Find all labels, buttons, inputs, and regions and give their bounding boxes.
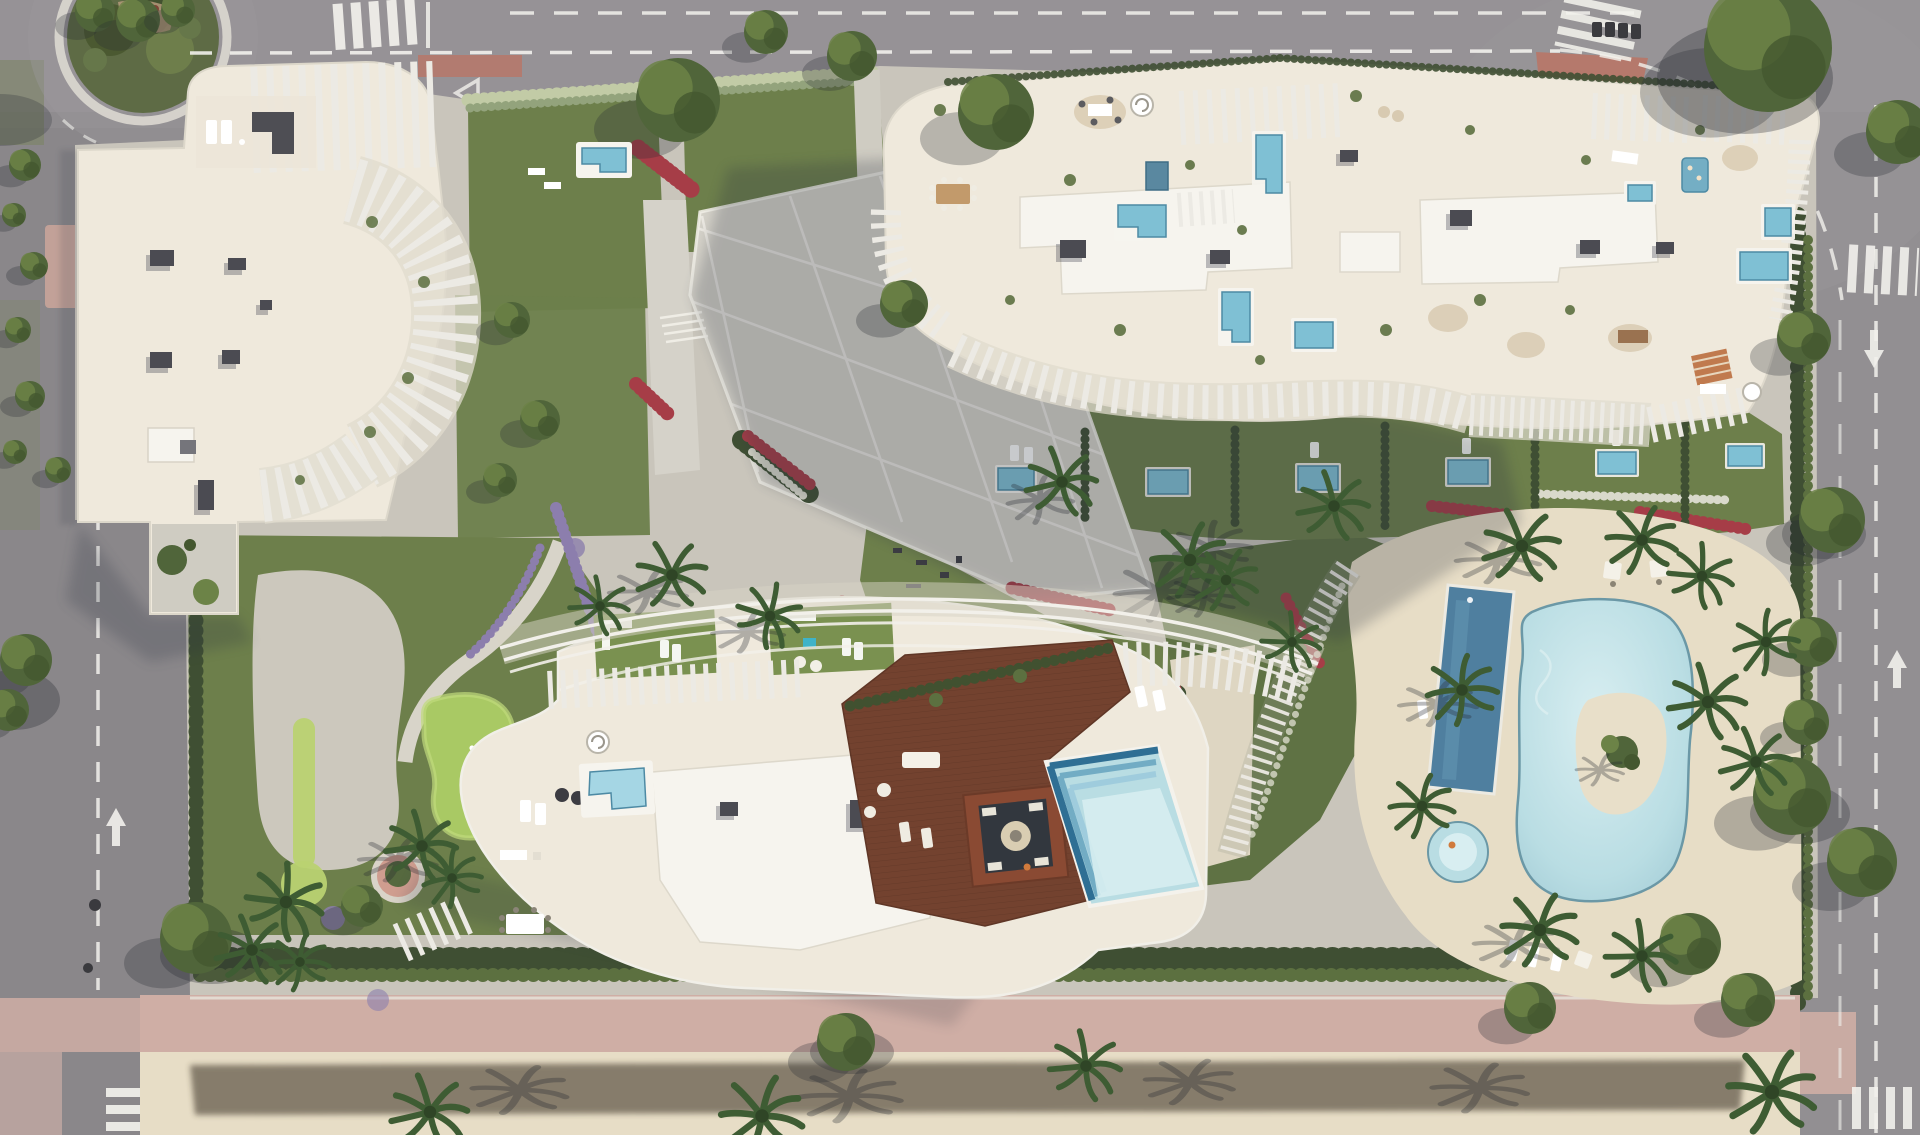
spiral-stair-3 [587,731,609,753]
aerial-render [0,0,1920,1135]
swimmer [1449,842,1456,849]
small-roof-pool [579,760,656,818]
roof-terrace-west [196,96,316,168]
pool-mat [803,638,816,647]
spa-pool [1682,158,1708,192]
pink-crossing-west [0,998,140,1052]
spiral-stair [1131,94,1153,116]
lounge-pit [963,785,1068,887]
jacuzzi [1146,162,1168,190]
spiral-stair-2 [1743,383,1761,401]
garden-pocket [253,570,405,870]
play-path [293,718,315,868]
courtyard [152,524,236,612]
bus-stop-paving [418,55,522,77]
aerial-render-stage [0,0,1920,1135]
